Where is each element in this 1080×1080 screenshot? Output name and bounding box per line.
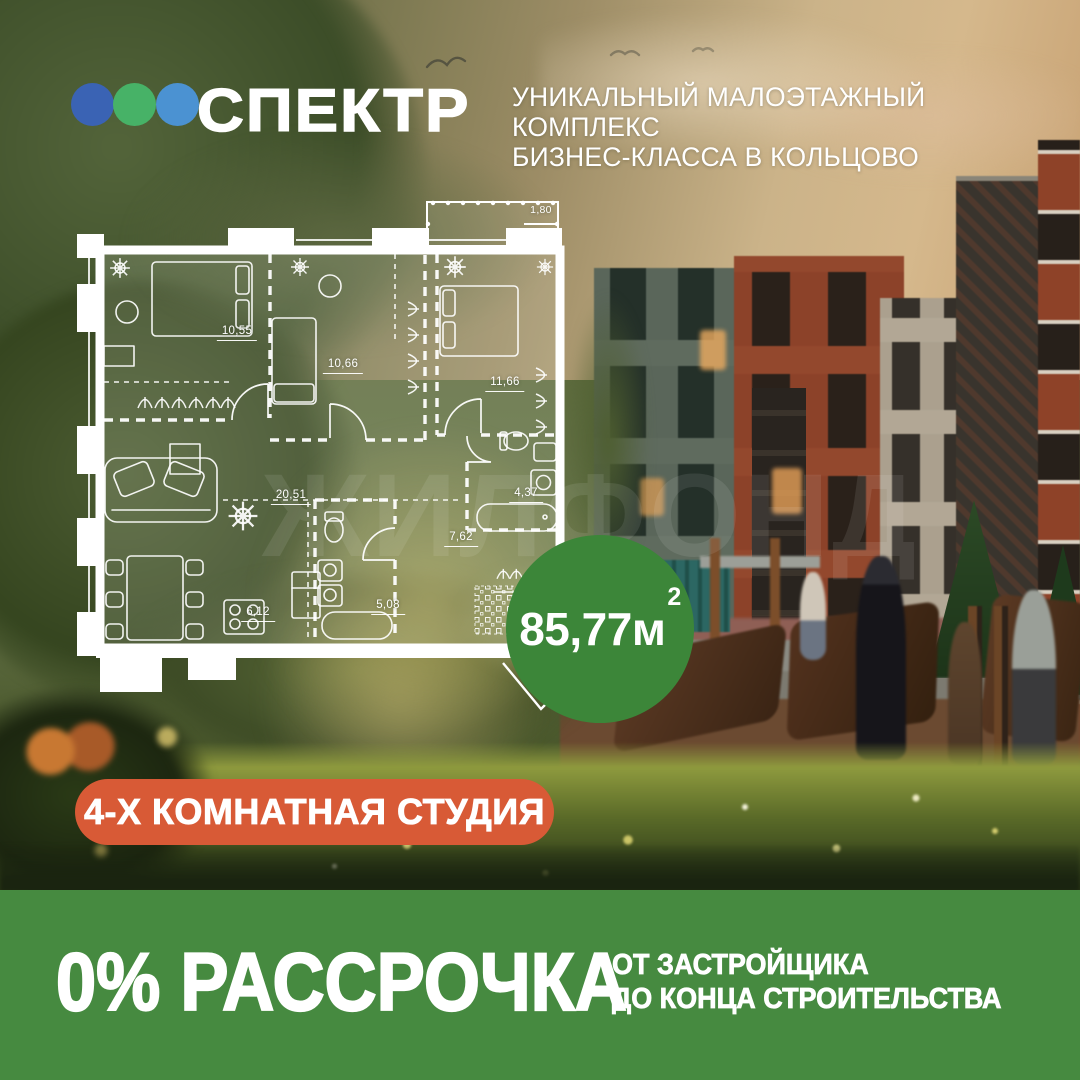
logo-dot-lightblue-icon: [156, 83, 199, 126]
tagline-line1: УНИКАЛЬНЫЙ МАЛОЭТАЖНЫЙ КОМПЛЕКС: [512, 82, 1080, 142]
offer-detail-line1: ОТ ЗАСТРОЙЩИКА: [612, 948, 1002, 982]
logo-dot-blue-icon: [71, 83, 114, 126]
room-label-kitchen: 6,12: [241, 606, 275, 622]
logo-wordmark: СПЕКТР: [197, 76, 471, 145]
total-area-value: 85,77м: [519, 602, 665, 656]
total-area-badge: 85,77м 2: [506, 535, 694, 723]
offer-headline: 0% РАССРОЧКА: [56, 936, 627, 1030]
logo-dot-green-icon: [113, 83, 156, 126]
tagline-line2: БИЗНЕС-КЛАССА В КОЛЬЦОВО: [512, 142, 1080, 172]
footer-band: 0% РАССРОЧКА ОТ ЗАСТРОЙЩИКА ДО КОНЦА СТР…: [0, 890, 1080, 1080]
room-label-bedroom-3: 11,66: [485, 376, 524, 392]
offer-details: ОТ ЗАСТРОЙЩИКА ДО КОНЦА СТРОИТЕЛЬСТВА: [612, 948, 1002, 1016]
tagline: УНИКАЛЬНЫЙ МАЛОЭТАЖНЫЙ КОМПЛЕКС БИЗНЕС-К…: [512, 82, 1080, 172]
offer-detail-line2: ДО КОНЦА СТРОИТЕЛЬСТВА: [612, 982, 1002, 1016]
dim-label-balcony: 1,80: [525, 204, 557, 219]
room-label-bedroom-1: 10,55: [217, 325, 257, 341]
ad-poster: 10,55 10,66 11,66 20,51 6,12 5,08 7,62 4…: [0, 0, 1080, 1080]
total-area-superscript: 2: [667, 583, 680, 612]
apartment-type-badge: 4-Х КОМНАТНАЯ СТУДИЯ: [75, 779, 554, 845]
room-label-bedroom-2: 10,66: [323, 358, 363, 374]
room-label-bathroom-1: 5,08: [371, 599, 405, 615]
